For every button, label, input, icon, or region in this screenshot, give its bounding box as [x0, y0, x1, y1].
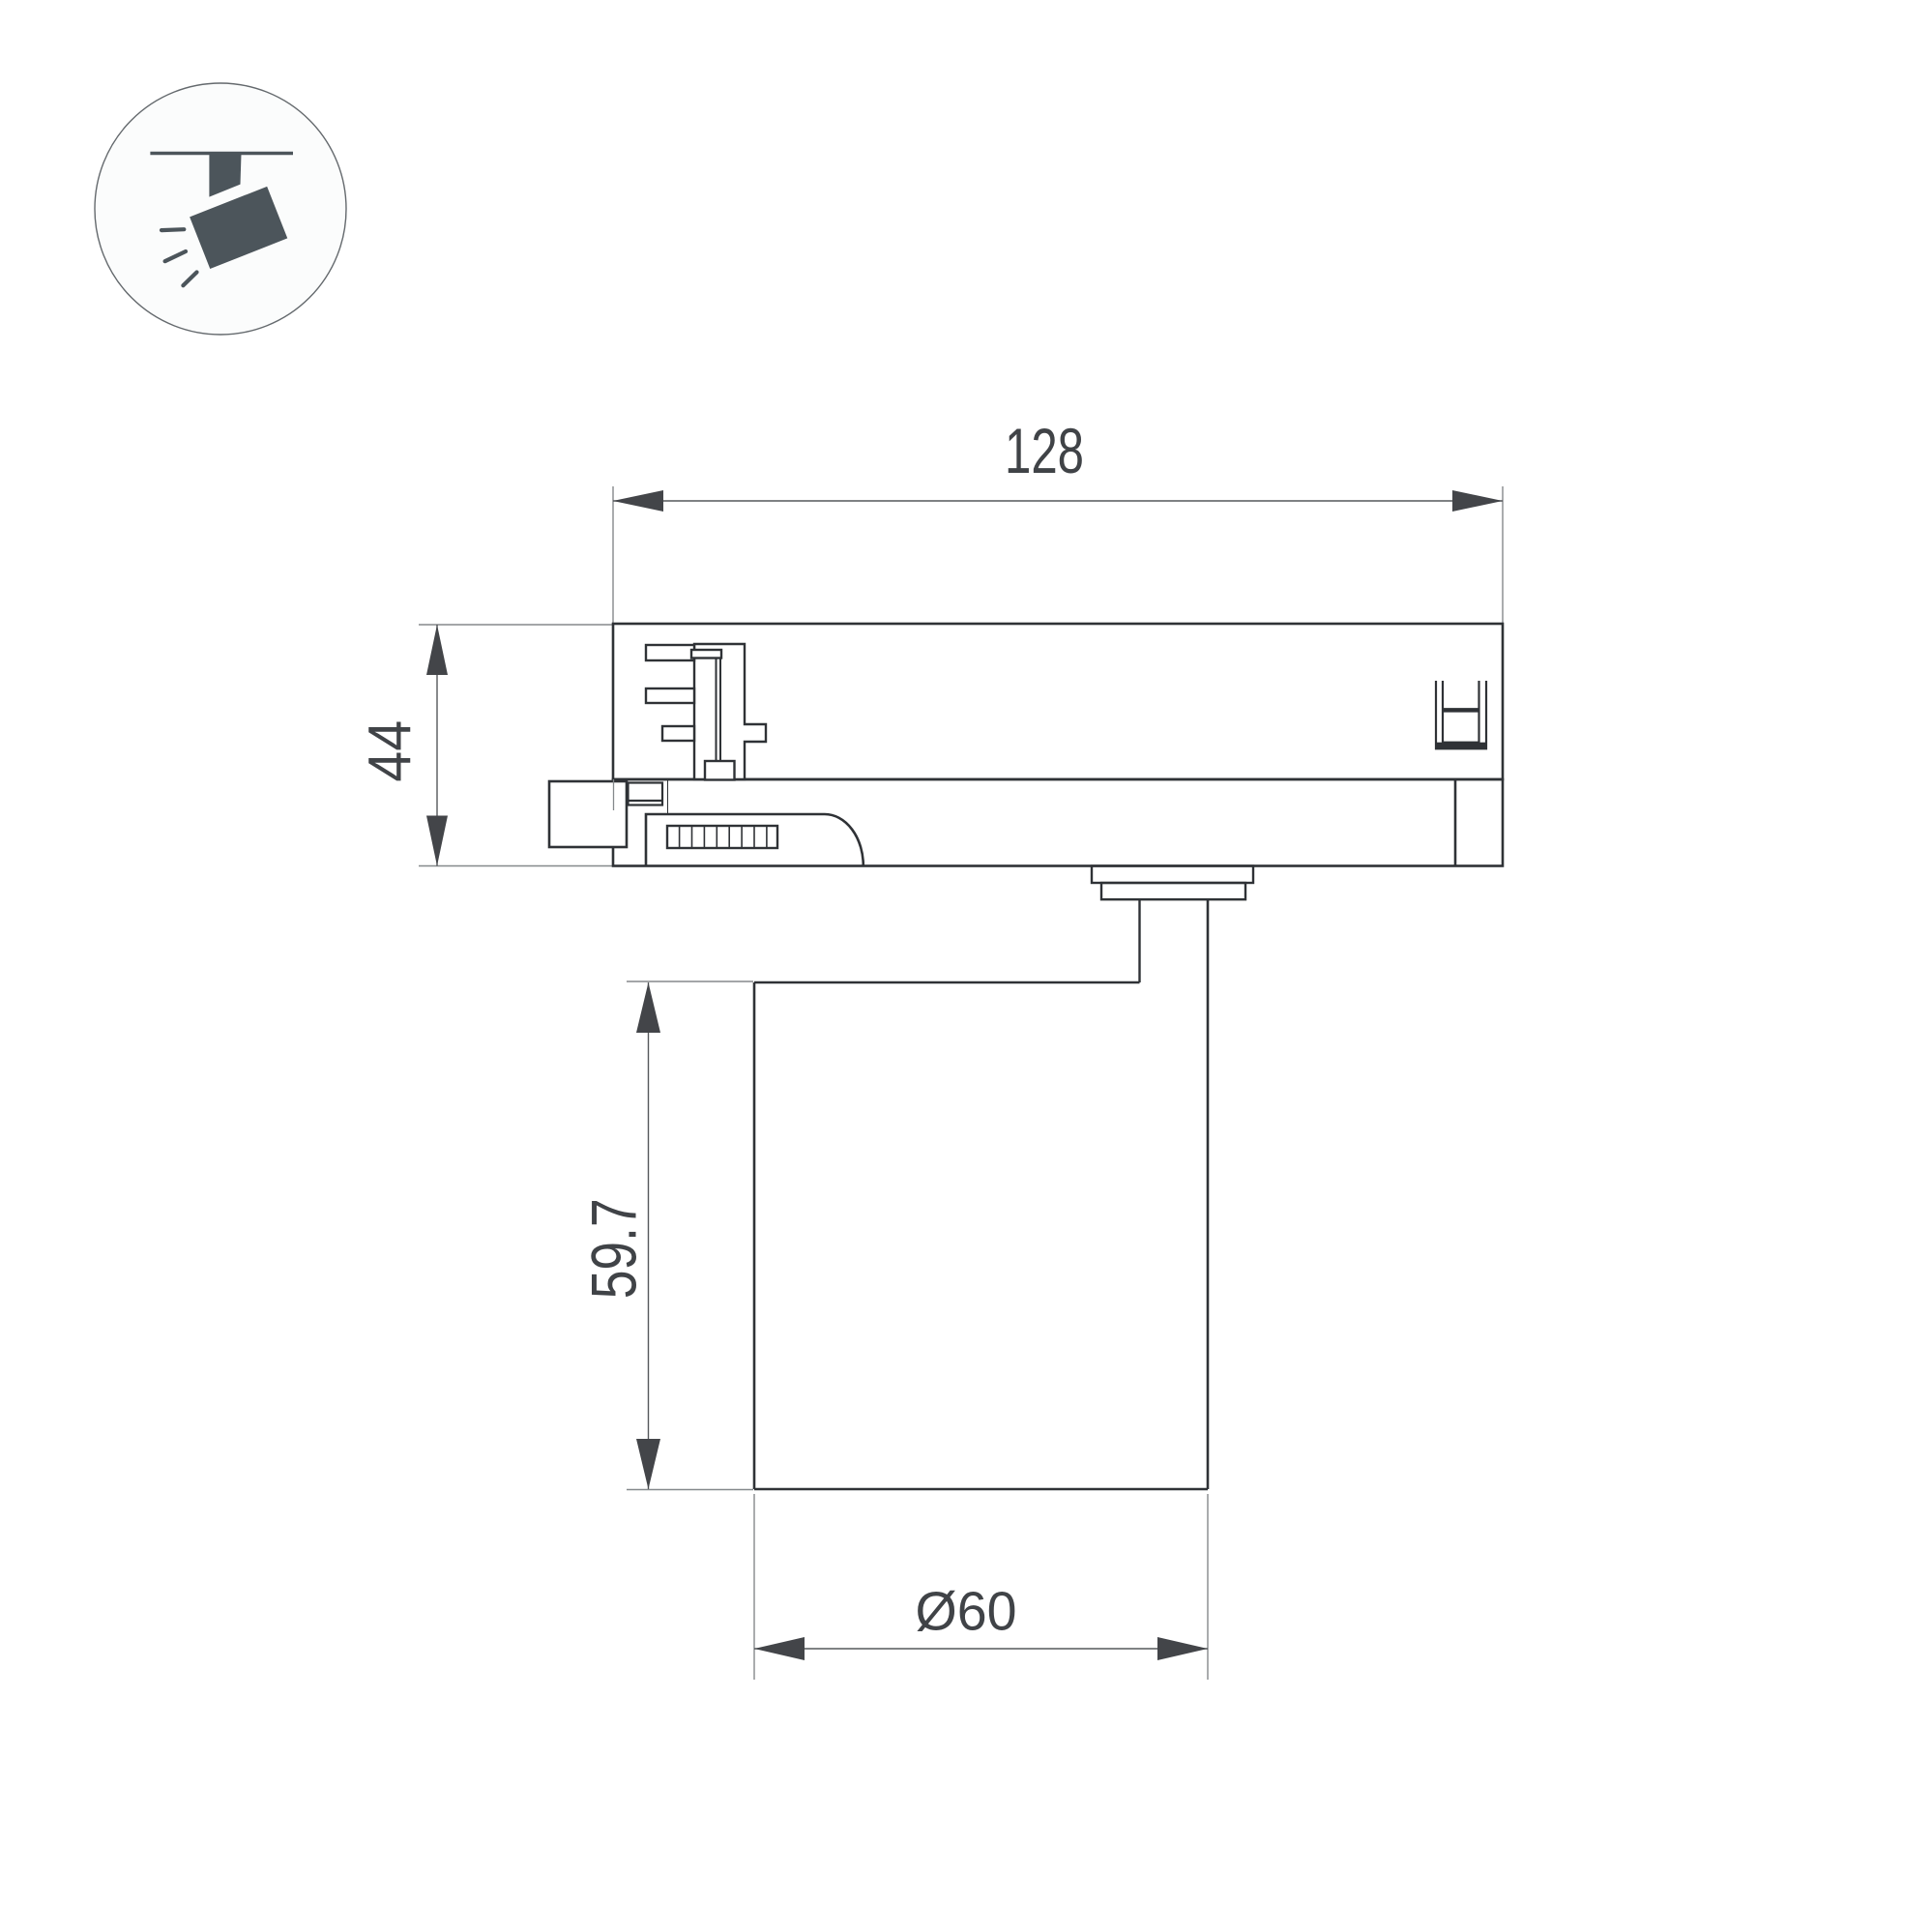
svg-text:59.7: 59.7	[578, 1198, 650, 1299]
svg-text:128: 128	[1005, 415, 1084, 486]
svg-text:44: 44	[357, 720, 424, 782]
svg-text:Ø60: Ø60	[916, 1580, 1017, 1642]
